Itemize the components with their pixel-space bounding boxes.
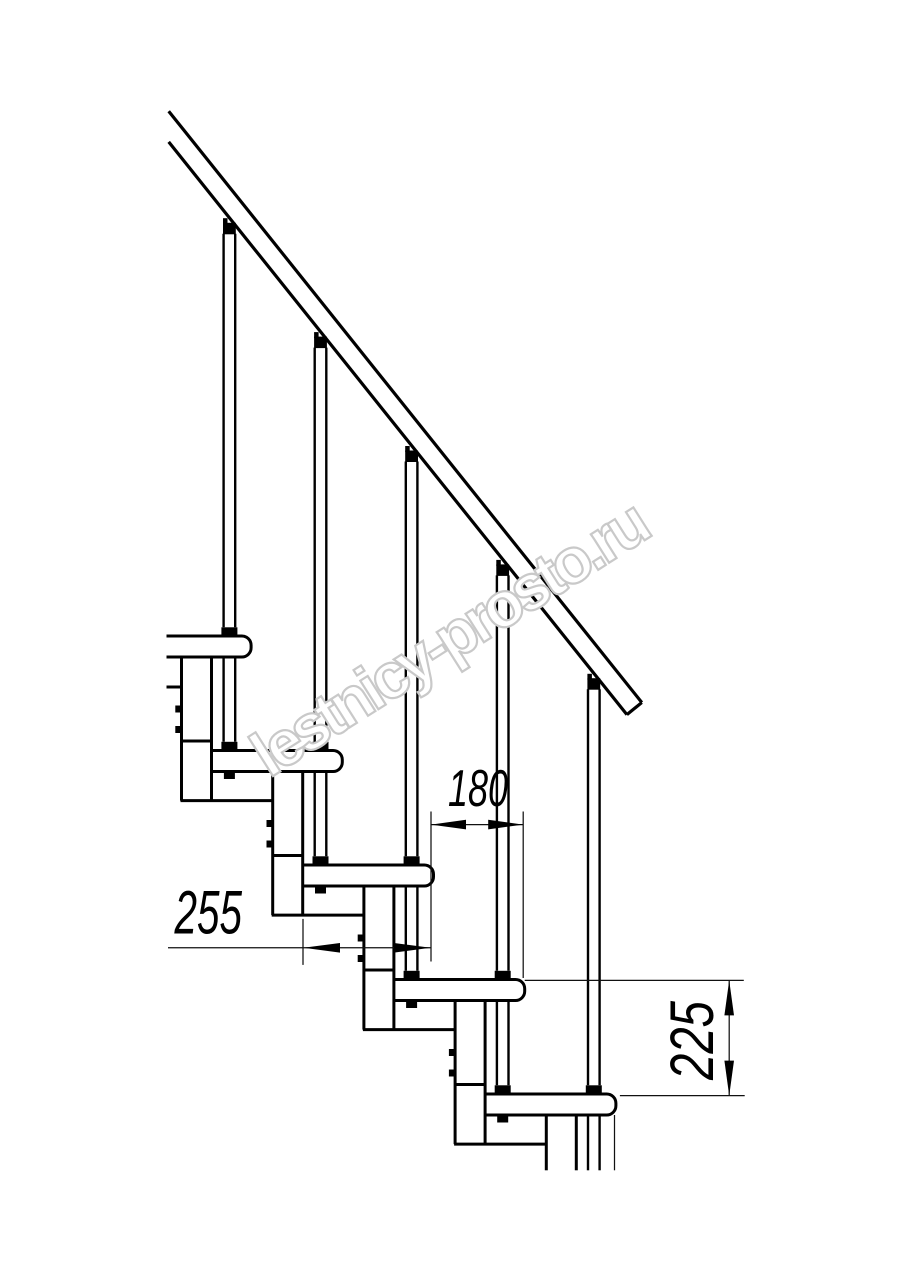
svg-text:255: 255 [174, 879, 243, 947]
svg-text:lestnicy-prosto.ru: lestnicy-prosto.ru [238, 487, 659, 791]
svg-text:180: 180 [448, 760, 508, 818]
svg-text:225: 225 [658, 1000, 726, 1081]
